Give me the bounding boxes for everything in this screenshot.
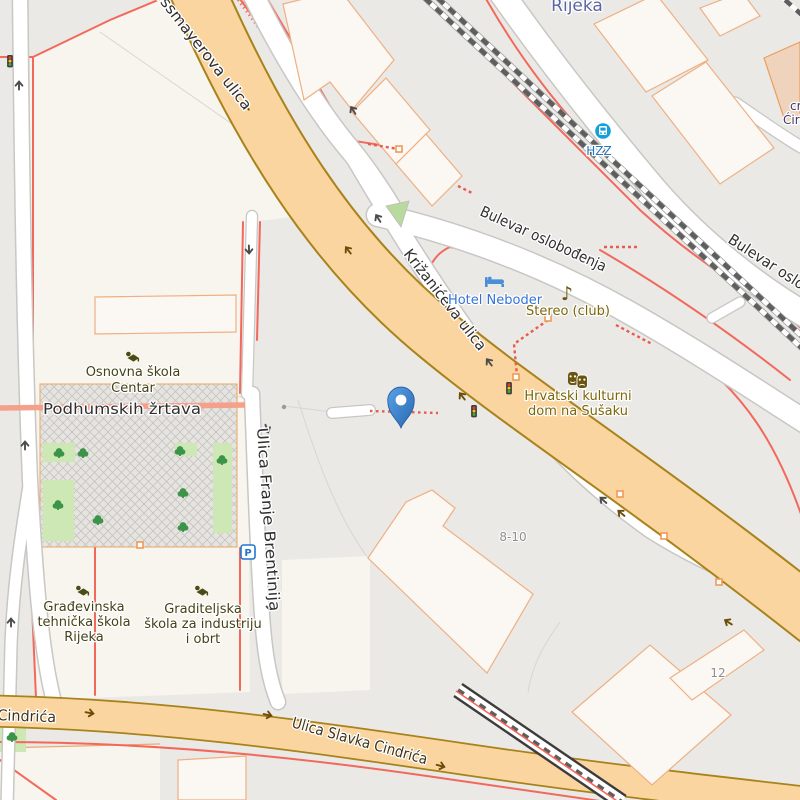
poi-label-hzz: HZZ xyxy=(586,144,611,158)
svg-text:Centar: Centar xyxy=(111,381,155,396)
housenumber-12: 12 xyxy=(710,666,725,680)
svg-text:Ćiri: Ćiri xyxy=(783,112,800,127)
parking-icon: P xyxy=(241,545,255,559)
street-label-podhumskih: Podhumskih žrtava xyxy=(43,400,201,418)
bus-stop-icon[interactable] xyxy=(595,123,612,140)
svg-text:cr: cr xyxy=(790,99,800,113)
map-svg: P ♪ xyxy=(0,0,800,800)
svg-text:Osnovna škola: Osnovna škola xyxy=(86,365,181,380)
svg-text:Graditeljska: Graditeljska xyxy=(164,602,242,617)
city-label: Rijeka xyxy=(551,0,603,16)
housenumber-8-10: 8-10 xyxy=(499,530,526,544)
svg-text:Rijeka: Rijeka xyxy=(64,630,104,645)
svg-text:škola za industriju: škola za industriju xyxy=(144,617,261,632)
svg-text:tehnička škola: tehnička škola xyxy=(37,615,130,630)
svg-text:Građevinska: Građevinska xyxy=(43,600,124,615)
svg-text:Hrvatski kulturni: Hrvatski kulturni xyxy=(524,389,631,404)
svg-text:dom na Sušaku: dom na Sušaku xyxy=(528,404,628,419)
map-canvas[interactable]: P ♪ xyxy=(0,0,800,800)
bollard-dot xyxy=(282,405,286,409)
parking-label: P xyxy=(244,548,251,559)
music-note-icon: ♪ xyxy=(561,283,573,305)
poi-label-kulturni-dom: Hrvatski kulturni dom na Sušaku xyxy=(524,389,631,419)
poi-label-stereo-club: Stereo (club) xyxy=(526,304,610,319)
svg-text:i obrt: i obrt xyxy=(186,632,220,647)
